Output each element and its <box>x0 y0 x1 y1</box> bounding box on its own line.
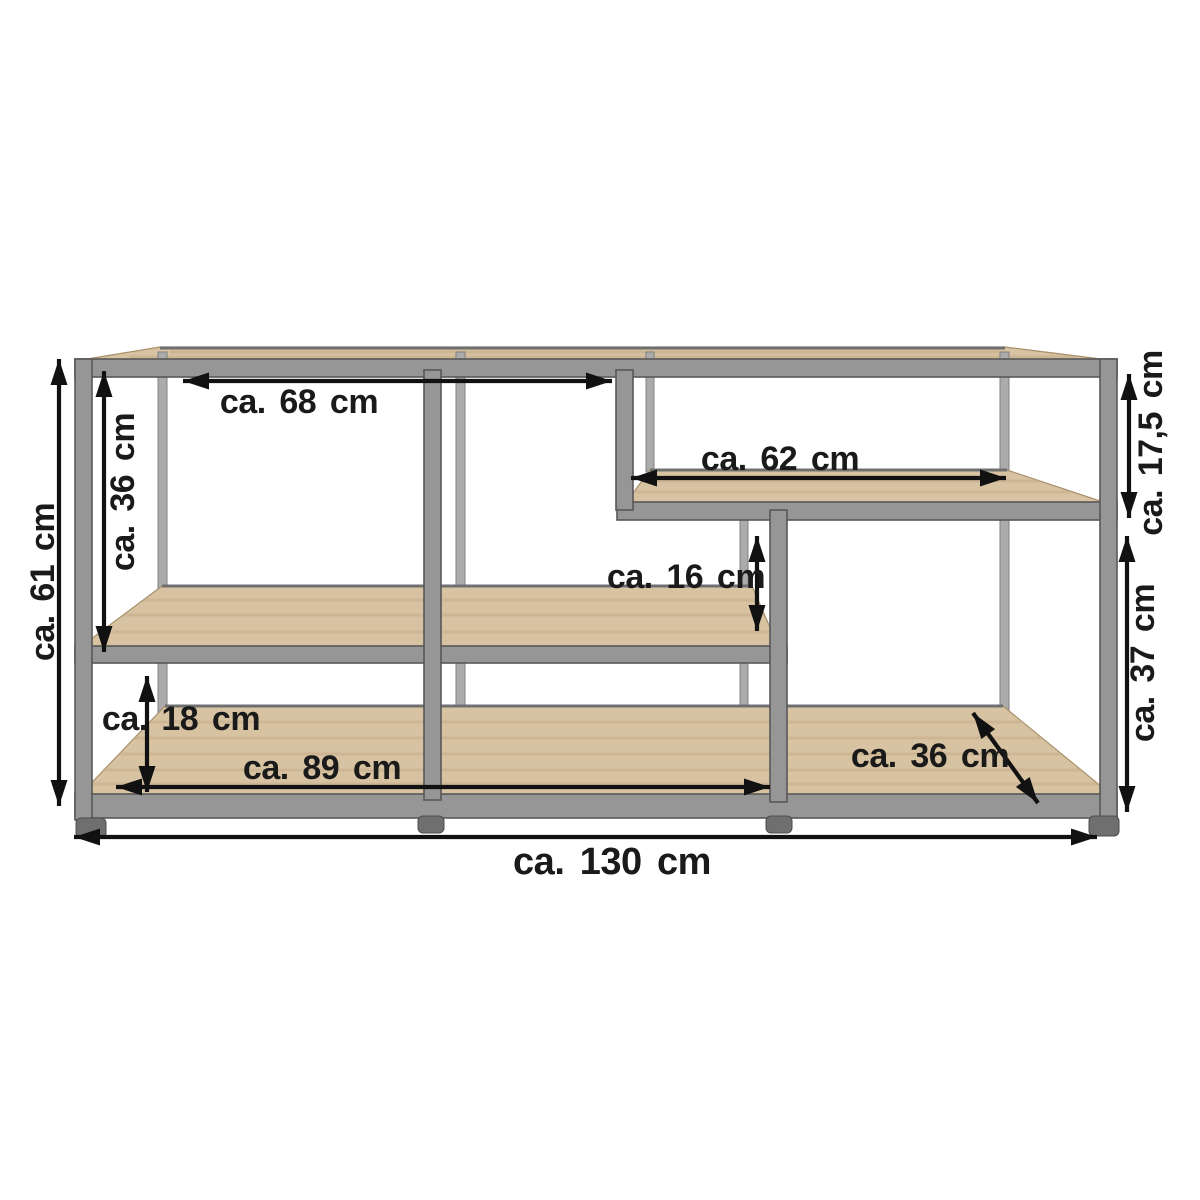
feet <box>76 816 1119 838</box>
dim-label-right-shelf-width: ca. 62 cm <box>701 442 859 476</box>
dim-label-lower-shelf-width: ca. 89 cm <box>243 751 401 785</box>
dim-label-total-width: ca. 130 cm <box>513 843 711 881</box>
dim-label-total-height: ca. 61 cm <box>26 503 60 661</box>
shelf-illustration <box>0 0 1200 1200</box>
dim-label-upper-opening-width: ca. 68 cm <box>220 385 378 419</box>
dim-label-upper-left-height: ca. 36 cm <box>106 413 140 571</box>
dim-label-lower-left-height: ca. 18 cm <box>102 702 260 736</box>
dim-label-upper-right-height: ca. 17,5 cm <box>1134 350 1168 536</box>
dimension-diagram: ca. 68 cm ca. 36 cm ca. 61 cm ca. 62 cm … <box>0 0 1200 1200</box>
dim-label-shelf-depth: ca. 36 cm <box>851 739 1009 773</box>
dim-label-lower-right-height: ca. 37 cm <box>1126 584 1160 742</box>
dim-label-middle-gap-height: ca. 16 cm <box>607 560 765 594</box>
